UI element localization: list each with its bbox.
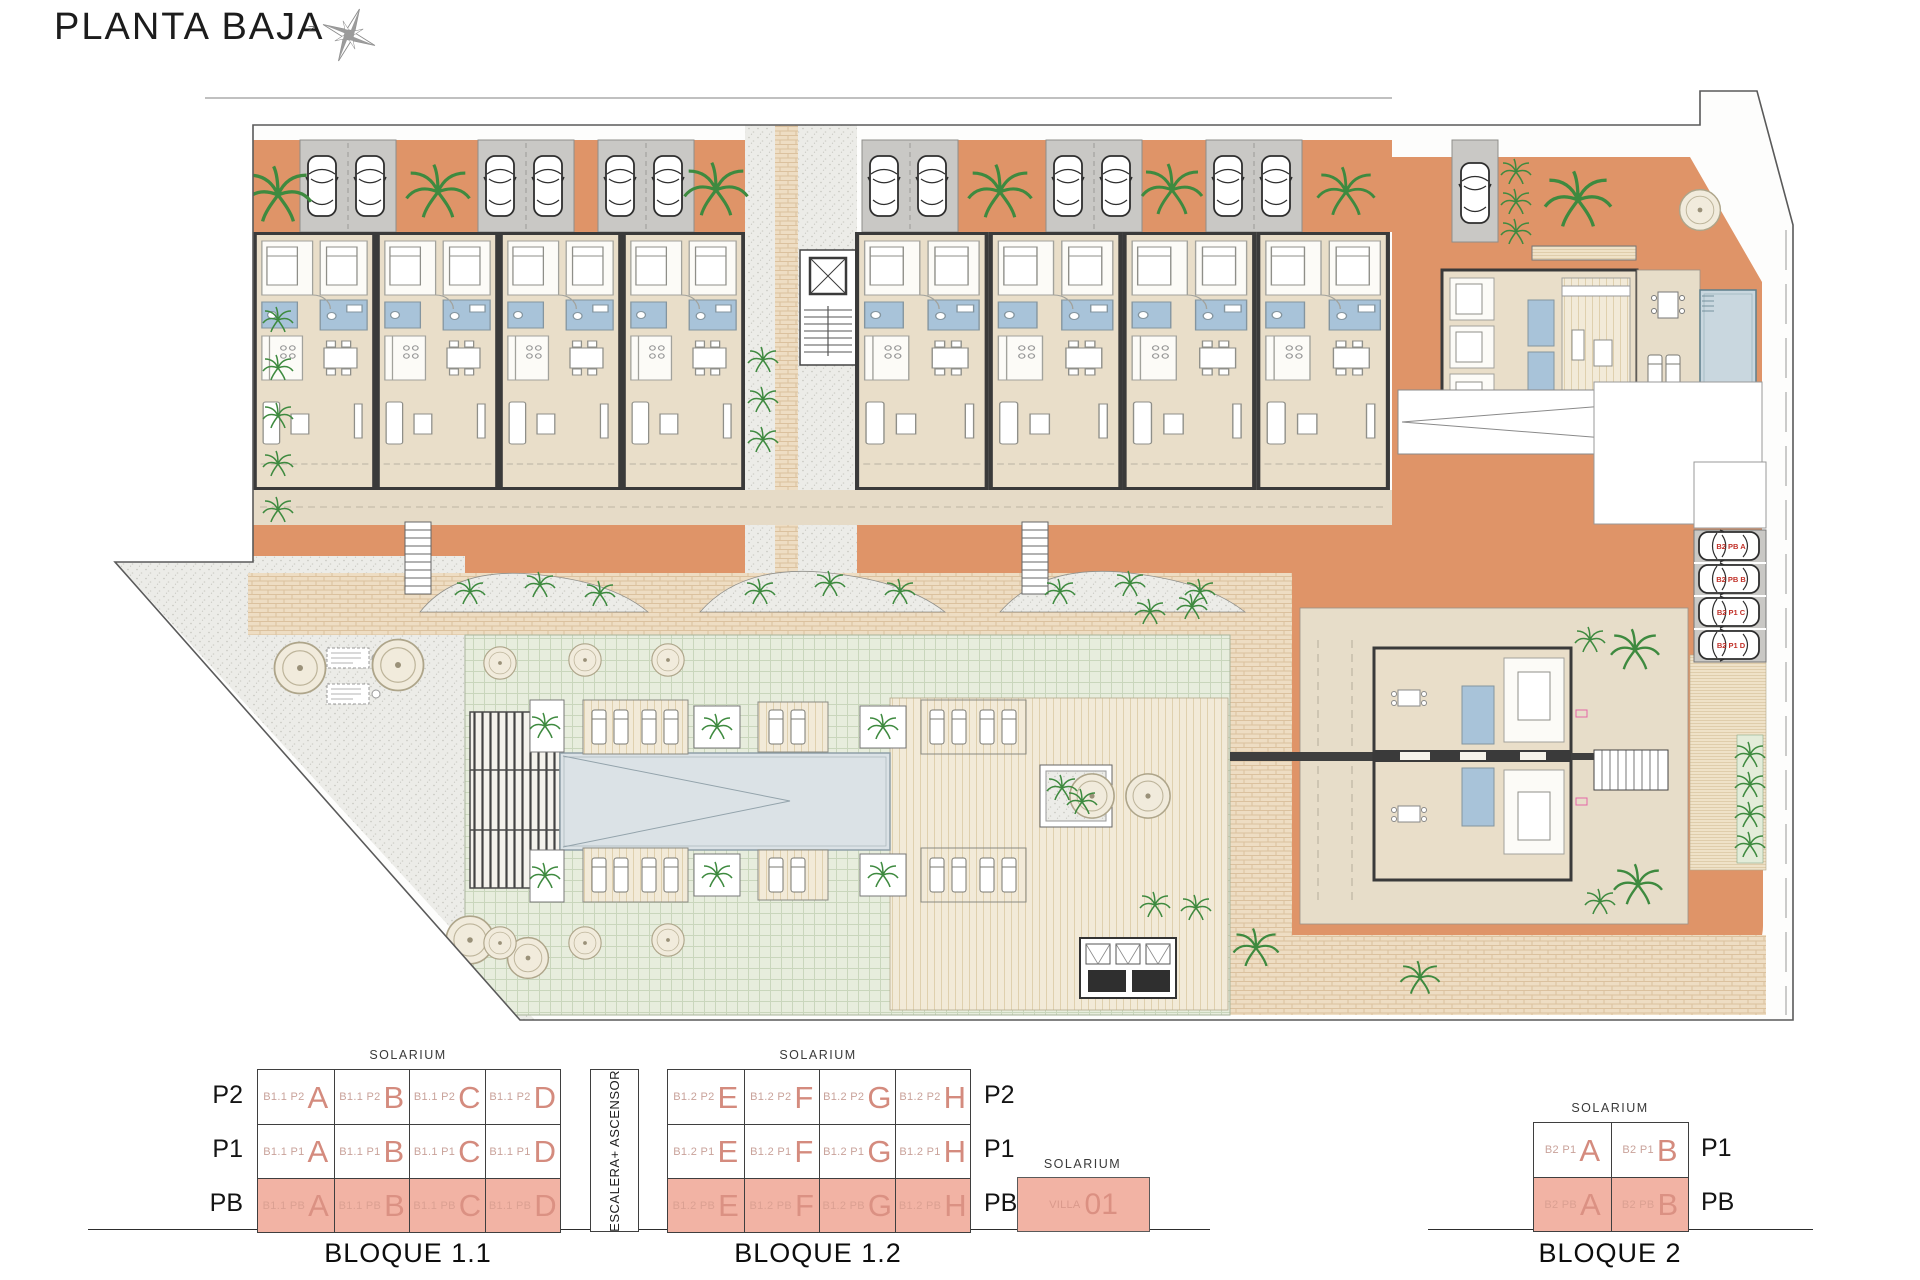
unit-cell: B1.1 P1B — [334, 1124, 410, 1178]
floor-label-pb: PB — [984, 1189, 1017, 1218]
villa-pergola-row — [1532, 246, 1636, 260]
pool — [560, 753, 890, 850]
parking-space-label: B2 P1 C — [1717, 608, 1746, 617]
floor-plan-page: PLANTA BAJA N — [0, 0, 1920, 1280]
solarium-label: SOLARIUM — [257, 1048, 559, 1062]
bloque-2-name: BLOQUE 2 — [1533, 1238, 1687, 1269]
unit-cell-highlighted: B2 PBA — [1534, 1177, 1611, 1231]
parking-bay — [1206, 140, 1302, 232]
bloque-2-diagram: B2 P1A B2 P1B B2 PBA B2 PBB — [1533, 1122, 1689, 1232]
unit-cell-highlighted: B1.2 PBG — [819, 1178, 895, 1232]
unit-cell: B2 P1A — [1534, 1123, 1611, 1177]
bloque-2-building — [1374, 648, 1587, 880]
parking-bay — [478, 140, 574, 232]
escalera-ascensor-box: ESCALERA+ ASCENSOR — [590, 1069, 639, 1232]
unit-cell: B1.1 P2B — [334, 1070, 410, 1124]
parking-bay — [862, 140, 958, 232]
bloque-2-parking: B2 PB A B2 PB B B2 P1 C B2 P1 D — [1694, 462, 1766, 662]
bloque-1-1-name: BLOQUE 1.1 — [257, 1238, 559, 1269]
floor-label-p1: P1 — [185, 1135, 243, 1164]
bloque-1-2-diagram: B1.2 P2E B1.2 P2F B1.2 P2G B1.2 P2H B1.2… — [667, 1069, 971, 1233]
parking-space-label: B2 P1 D — [1717, 641, 1746, 650]
floor-label-pb: PB — [185, 1189, 243, 1218]
parking-bay — [598, 140, 694, 232]
villa-01-diagram: VILLA 01 — [1017, 1177, 1150, 1232]
floor-label-pb: PB — [1701, 1188, 1734, 1217]
unit-cell-highlighted: B1.1 PBA — [258, 1178, 334, 1232]
unit-cell: B1.2 P1E — [668, 1124, 744, 1178]
central-stair-core — [800, 250, 856, 365]
unit-cell-highlighted: B1.1 PBC — [409, 1178, 485, 1232]
unit-cell: B1.2 P1H — [895, 1124, 971, 1178]
bloque-2-stairs — [1594, 750, 1668, 790]
bloque-1-2-name: BLOQUE 1.2 — [667, 1238, 969, 1269]
unit-cell: B2 P1B — [1611, 1123, 1688, 1177]
unit-cell: B1.2 P2G — [819, 1070, 895, 1124]
parking-space-label: B2 PB B — [1716, 575, 1746, 584]
solarium-label: SOLARIUM — [1017, 1157, 1148, 1171]
unit-cell-highlighted: B1.2 PBH — [895, 1178, 971, 1232]
floor-label-p1: P1 — [984, 1135, 1015, 1164]
unit-cell: B1.1 P1C — [409, 1124, 485, 1178]
south-paving — [1230, 935, 1766, 1015]
escalera-ascensor-label: ESCALERA+ ASCENSOR — [607, 1070, 622, 1232]
unit-cell-highlighted: B2 PBB — [1611, 1177, 1688, 1231]
floor-label-p1: P1 — [1701, 1134, 1732, 1163]
parking-space-label: B2 PB A — [1716, 542, 1746, 551]
unit-cell: B1.2 P1G — [819, 1124, 895, 1178]
unit-cell: B1.2 P1F — [744, 1124, 820, 1178]
bloque-1-1-diagram: B1.1 P2A B1.1 P2B B1.1 P2C B1.1 P2D B1.1… — [257, 1069, 561, 1233]
parking-bay — [1046, 140, 1142, 232]
unit-cell: B1.2 P2E — [668, 1070, 744, 1124]
unit-cell: B1.1 P2A — [258, 1070, 334, 1124]
floor-label-p2: P2 — [984, 1081, 1015, 1110]
unit-cell: B1.2 P2F — [744, 1070, 820, 1124]
unit-cell-highlighted: B1.1 PBB — [334, 1178, 410, 1232]
unit-cell: B1.1 P2C — [409, 1070, 485, 1124]
unit-cell: B1.1 P1A — [258, 1124, 334, 1178]
pool-wc-block — [1080, 938, 1176, 998]
parking-bay — [300, 140, 396, 232]
floor-label-p2: P2 — [185, 1081, 243, 1110]
villa-code: VILLA — [1049, 1199, 1080, 1211]
solarium-label: SOLARIUM — [667, 1048, 969, 1062]
car-icon — [1459, 163, 1491, 223]
unit-cell-highlighted: B1.2 PBE — [668, 1178, 744, 1232]
unit-cell: B1.1 P2D — [485, 1070, 561, 1124]
unit-cell-highlighted: B1.1 PBD — [485, 1178, 561, 1232]
unit-cell-highlighted: B1.2 PBF — [744, 1178, 820, 1232]
solarium-label: SOLARIUM — [1533, 1101, 1687, 1115]
unit-cell: B1.1 P1D — [485, 1124, 561, 1178]
villa-number: 01 — [1085, 1190, 1118, 1220]
unit-cell: B1.2 P2H — [895, 1070, 971, 1124]
